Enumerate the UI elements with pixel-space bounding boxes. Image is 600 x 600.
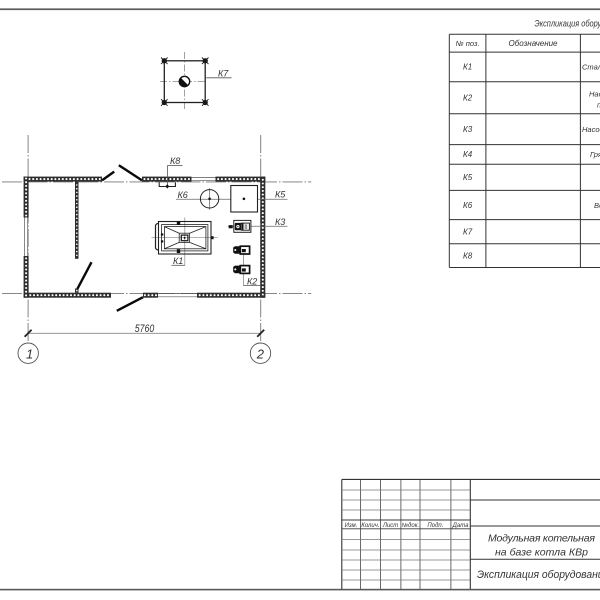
- svg-text:Подп.: Подп.: [427, 523, 443, 529]
- svg-text:Стальной котел КВр: Стальной котел КВр: [582, 63, 600, 72]
- svg-text:Изм.: Изм.: [345, 523, 358, 529]
- svg-text:№ поз.: № поз.: [456, 39, 480, 48]
- svg-text:Насос циркуляционный: Насос циркуляционный: [582, 125, 600, 134]
- svg-text:Экспликация оборудования: Экспликация оборудования: [477, 569, 600, 581]
- svg-text:К3: К3: [463, 125, 473, 134]
- svg-text:К7: К7: [218, 69, 229, 79]
- svg-text:К5: К5: [463, 173, 473, 182]
- svg-text:Вентилятор: Вентилятор: [594, 201, 600, 210]
- svg-text:К1: К1: [463, 63, 472, 72]
- svg-text:2: 2: [256, 346, 265, 361]
- svg-text:№док.: №док.: [402, 522, 420, 529]
- svg-text:на базе котла КВр: на базе котла КВр: [495, 547, 588, 559]
- svg-text:Колич.: Колич.: [361, 523, 379, 529]
- svg-text:5760: 5760: [135, 323, 155, 335]
- svg-text:Экспликация оборудования: Экспликация оборудования: [535, 19, 600, 29]
- svg-text:К4: К4: [463, 150, 473, 159]
- svg-text:К2: К2: [247, 276, 257, 286]
- svg-text:К8: К8: [463, 252, 473, 261]
- svg-text:К8: К8: [170, 156, 180, 166]
- svg-text:К3: К3: [275, 217, 285, 227]
- svg-text:К2: К2: [463, 94, 473, 103]
- svg-text:Дата: Дата: [452, 523, 469, 529]
- svg-text:1: 1: [26, 346, 33, 361]
- svg-text:Обозначение: Обозначение: [508, 39, 558, 48]
- svg-text:К7: К7: [463, 228, 473, 237]
- svg-text:Насосная установка: Насосная установка: [589, 90, 600, 99]
- svg-text:К6: К6: [463, 201, 473, 210]
- svg-text:К1: К1: [173, 256, 183, 266]
- svg-text:К6: К6: [178, 190, 188, 200]
- svg-text:Лист: Лист: [382, 523, 398, 529]
- svg-text:К5: К5: [275, 189, 286, 199]
- svg-text:Грязевик: Грязевик: [590, 150, 600, 159]
- svg-text:Модульная котельная: Модульная котельная: [488, 533, 595, 545]
